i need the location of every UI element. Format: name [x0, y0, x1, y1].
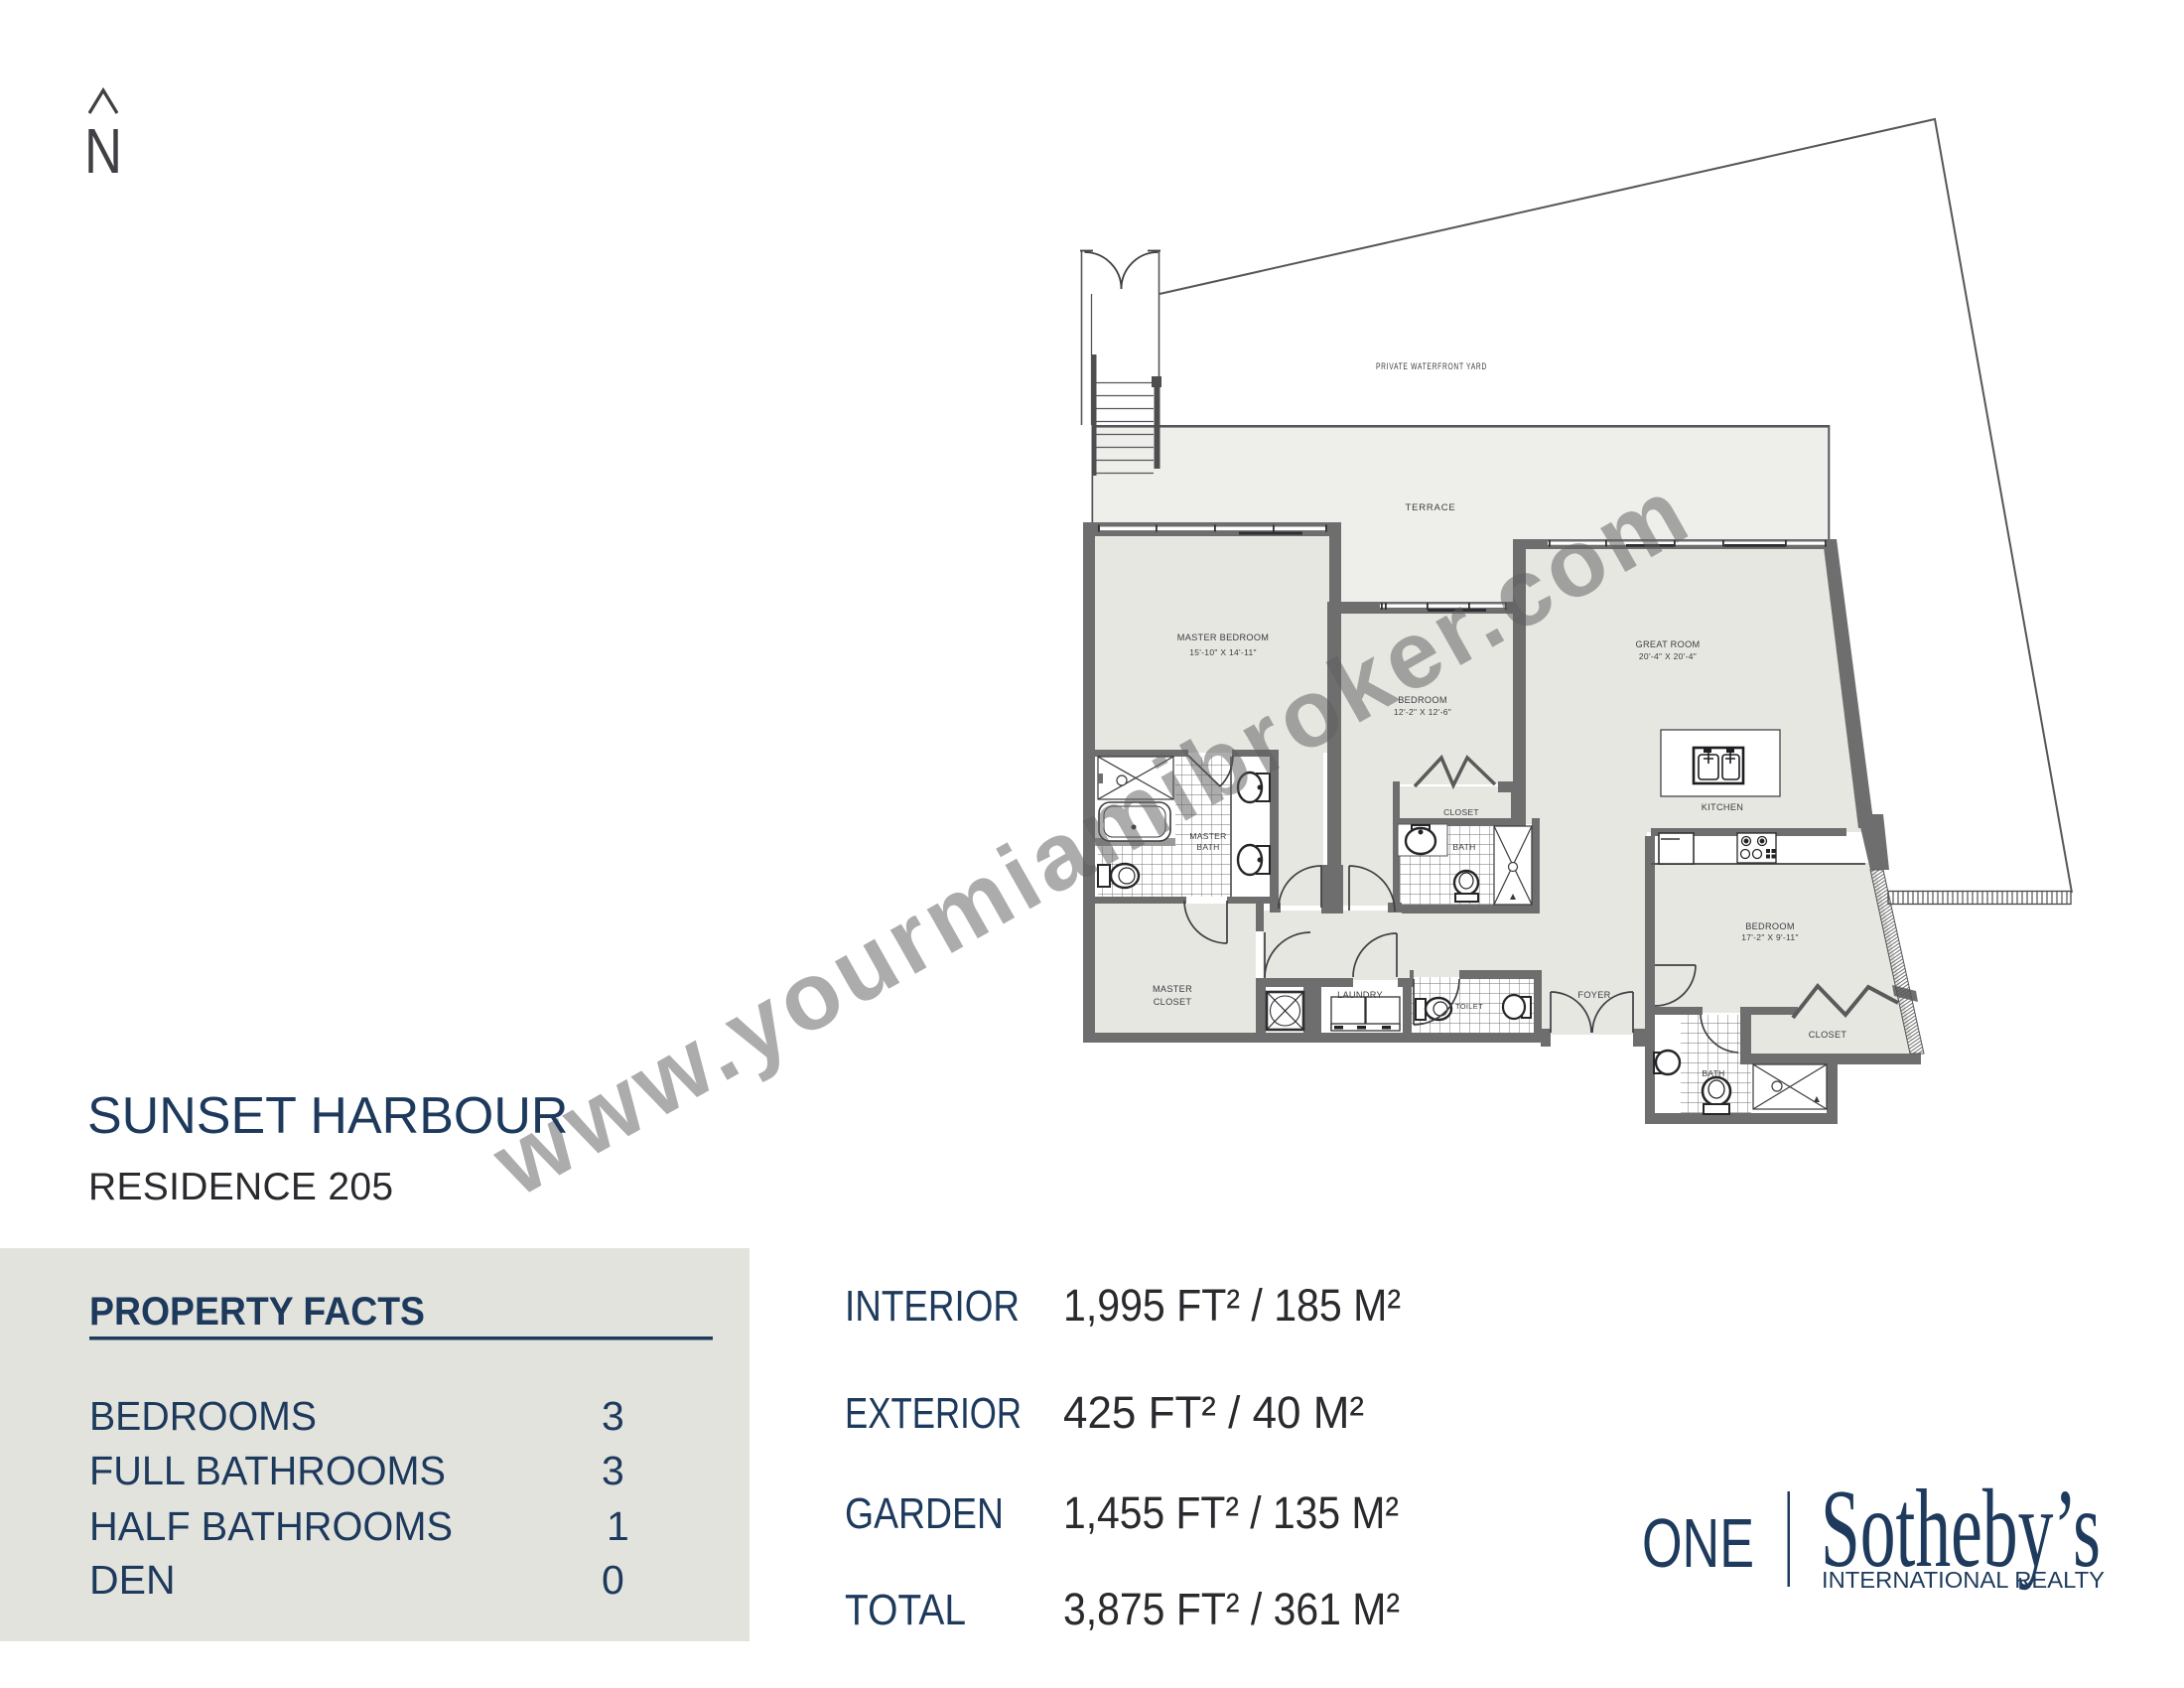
svg-text:TERRACE: TERRACE [1406, 502, 1456, 513]
svg-text:INTERIOR: INTERIOR [845, 1282, 1020, 1331]
svg-text:17'-2" X 9'-11": 17'-2" X 9'-11" [1741, 932, 1799, 942]
svg-text:FOYER: FOYER [1577, 990, 1610, 1000]
svg-text:15'-10" X 14'-11": 15'-10" X 14'-11" [1189, 647, 1257, 657]
svg-text:BATH: BATH [1196, 842, 1219, 852]
svg-text:GREAT ROOM: GREAT ROOM [1636, 639, 1701, 649]
svg-text:20'-4" X 20'-4": 20'-4" X 20'-4" [1639, 651, 1697, 661]
svg-text:LAUNDRY: LAUNDRY [1337, 990, 1383, 1000]
svg-text:BATH: BATH [1452, 842, 1475, 852]
svg-text:INTERNATIONAL REALTY: INTERNATIONAL REALTY [1822, 1567, 2105, 1593]
svg-text:BATH: BATH [1702, 1068, 1724, 1078]
svg-text:3: 3 [602, 1448, 624, 1493]
svg-text:1,995 FT² / 185 M²: 1,995 FT² / 185 M² [1063, 1280, 1401, 1331]
svg-text:3: 3 [602, 1393, 624, 1439]
svg-text:CLOSET: CLOSET [1443, 807, 1479, 817]
svg-text:PRIVATE WATERFRONT YARD: PRIVATE WATERFRONT YARD [1376, 361, 1487, 372]
svg-text:DEN: DEN [89, 1557, 176, 1603]
svg-text:HALF BATHROOMS: HALF BATHROOMS [89, 1503, 453, 1549]
svg-text:EXTERIOR: EXTERIOR [845, 1389, 1022, 1438]
svg-text:GARDEN: GARDEN [845, 1489, 1004, 1538]
svg-text:RESIDENCE 205: RESIDENCE 205 [88, 1166, 393, 1208]
svg-text:BEDROOMS: BEDROOMS [89, 1393, 317, 1439]
svg-text:KITCHEN: KITCHEN [1702, 802, 1743, 812]
svg-text:CLOSET: CLOSET [1809, 1030, 1847, 1040]
svg-text:1,455 FT² / 135 M²: 1,455 FT² / 135 M² [1063, 1487, 1399, 1538]
svg-text:0: 0 [602, 1557, 624, 1603]
svg-text:425 FT² / 40 M²: 425 FT² / 40 M² [1063, 1387, 1364, 1438]
svg-text:MASTER: MASTER [1153, 984, 1192, 994]
svg-text:N: N [84, 115, 122, 187]
svg-text:ONE: ONE [1642, 1504, 1754, 1582]
svg-text:1: 1 [607, 1503, 629, 1549]
svg-text:MASTER BEDROOM: MASTER BEDROOM [1177, 633, 1270, 642]
svg-text:CLOSET: CLOSET [1154, 997, 1192, 1007]
svg-text:3,875 FT² / 361 M²: 3,875 FT² / 361 M² [1063, 1584, 1400, 1634]
svg-text:PROPERTY FACTS: PROPERTY FACTS [89, 1290, 425, 1334]
svg-text:BEDROOM: BEDROOM [1745, 921, 1795, 931]
svg-text:SUNSET HARBOUR: SUNSET HARBOUR [87, 1087, 568, 1145]
svg-text:TOTAL: TOTAL [845, 1586, 966, 1634]
svg-text:FULL BATHROOMS: FULL BATHROOMS [89, 1448, 446, 1493]
svg-text:TOILET: TOILET [1455, 1002, 1483, 1011]
